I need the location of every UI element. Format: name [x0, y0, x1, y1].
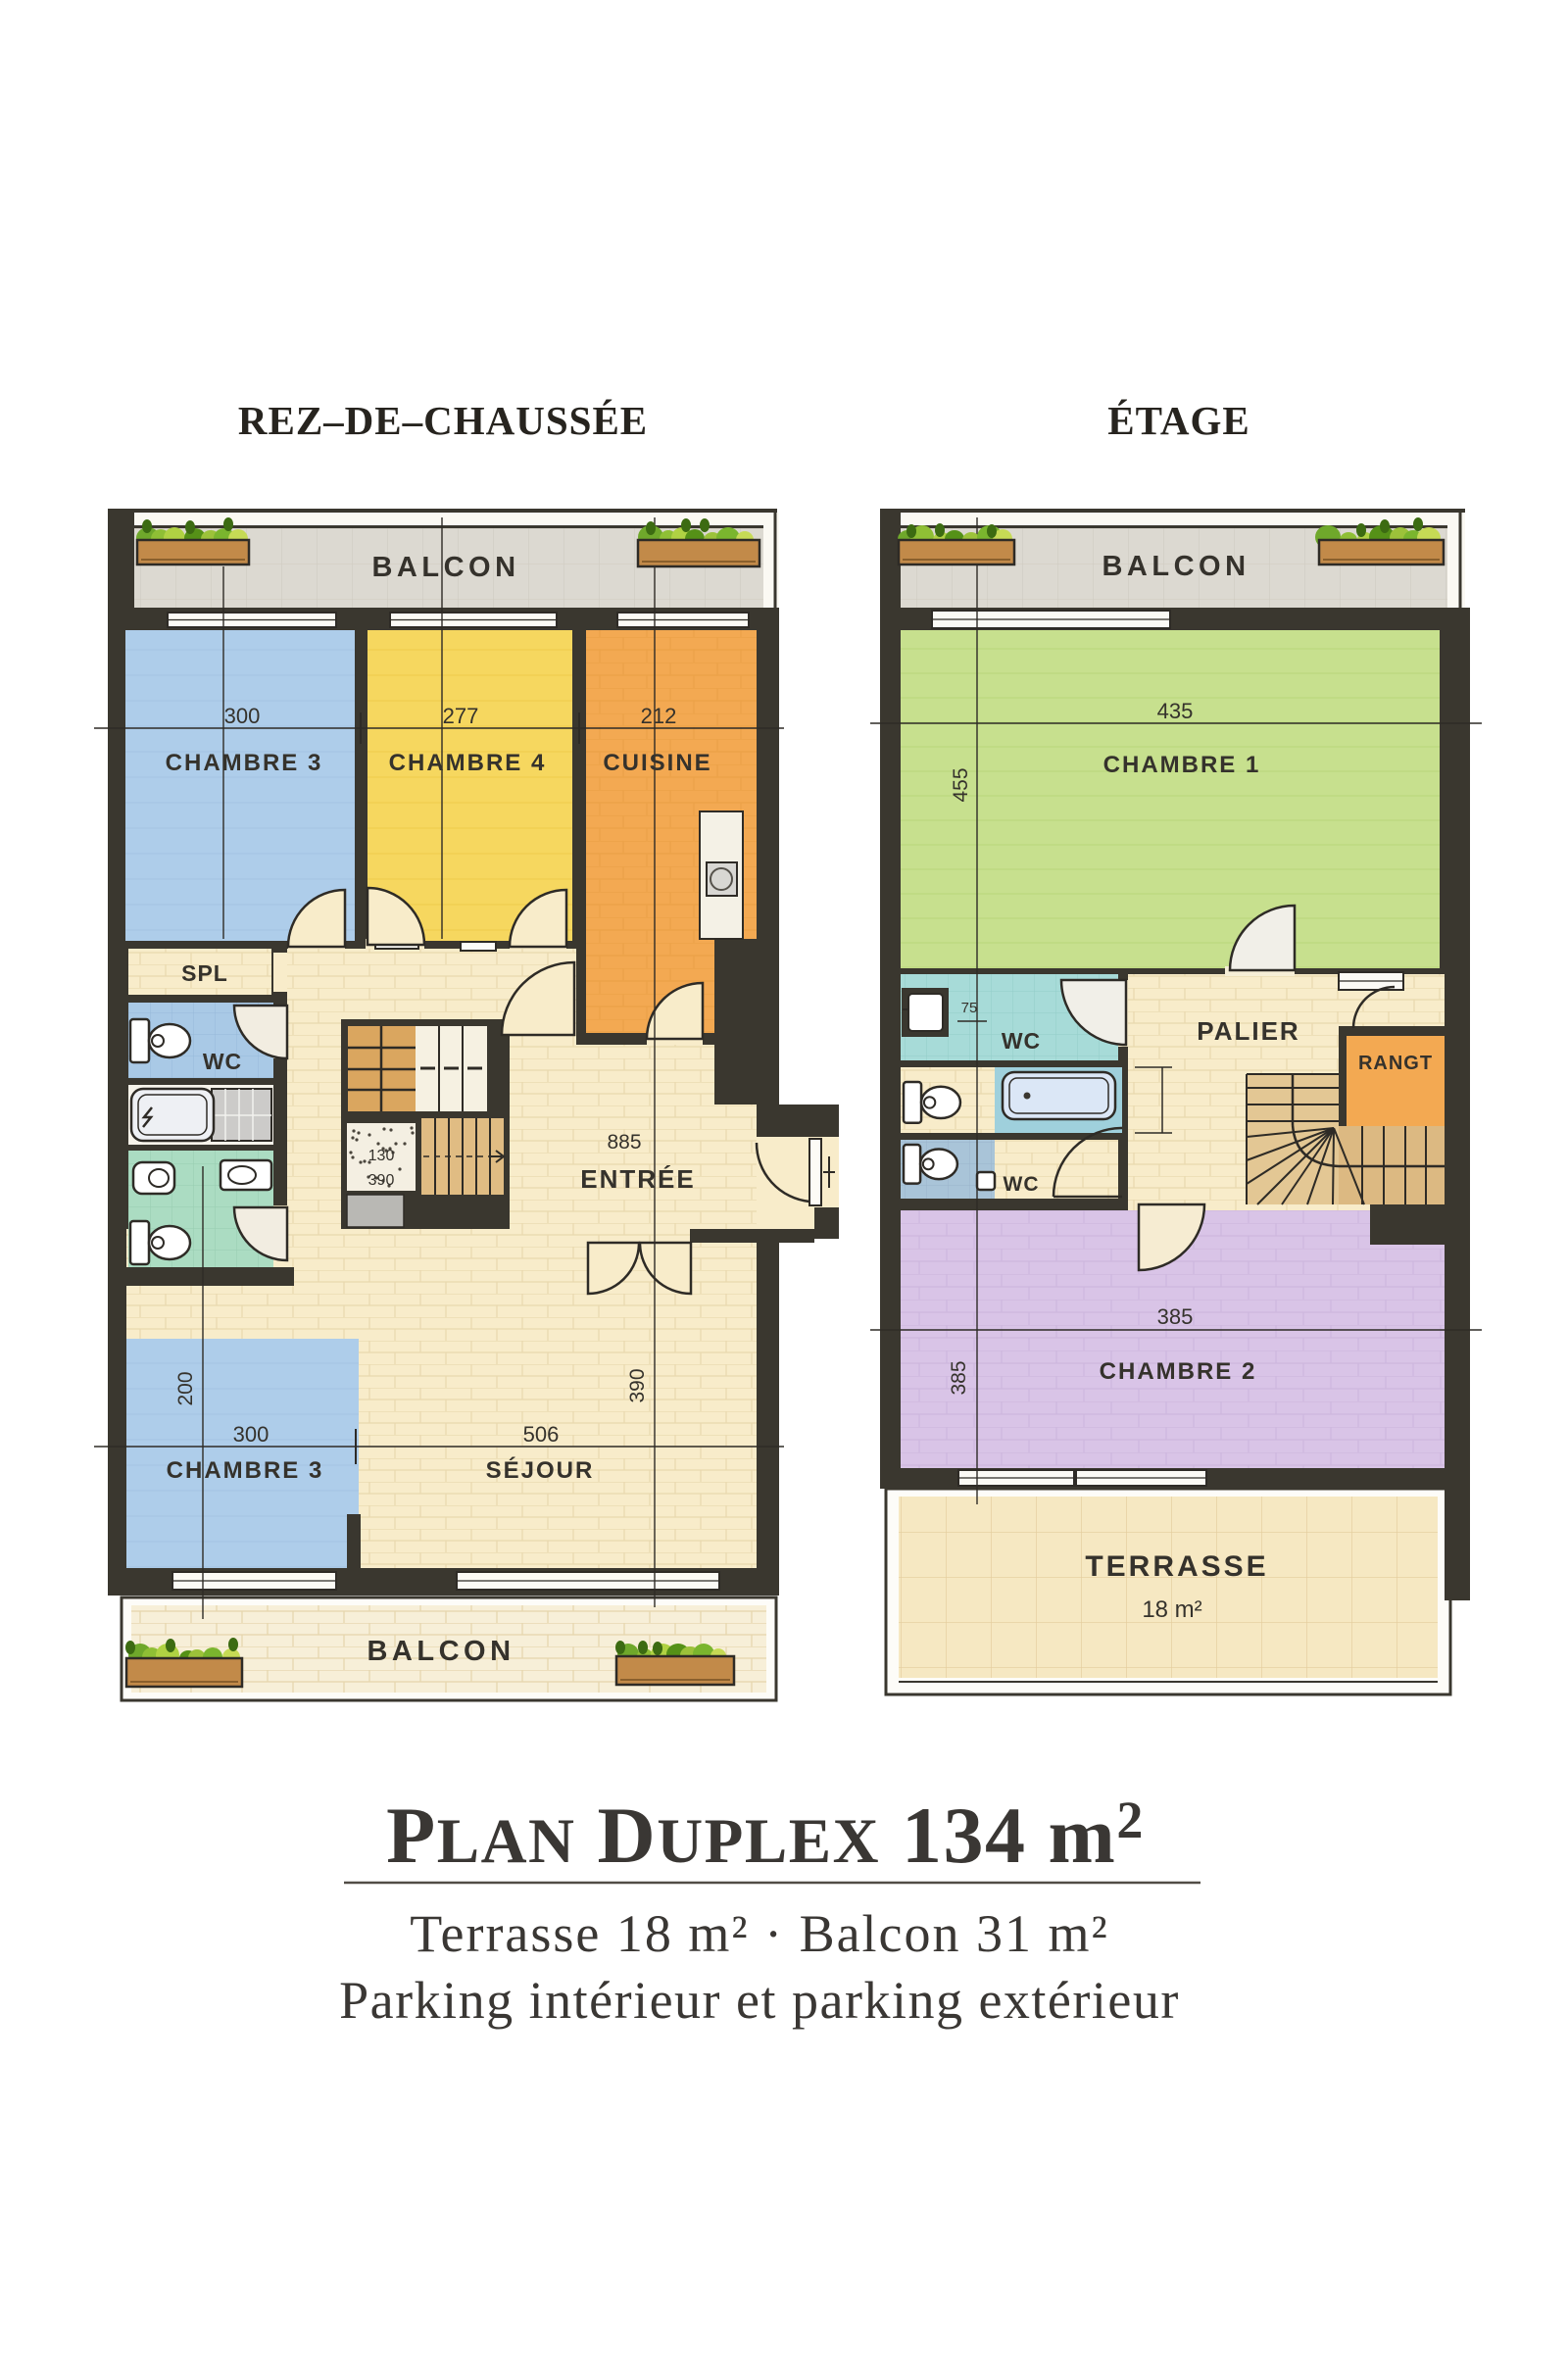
- svg-text:130: 130: [368, 1148, 395, 1164]
- svg-text:BALCON: BALCON: [1102, 551, 1249, 582]
- svg-text:506: 506: [523, 1422, 560, 1447]
- svg-text:CUISINE: CUISINE: [603, 750, 711, 776]
- svg-text:CHAMBRE 4: CHAMBRE 4: [389, 750, 547, 776]
- svg-text:390: 390: [626, 1368, 649, 1402]
- svg-text:PALIER: PALIER: [1197, 1016, 1299, 1046]
- svg-text:75: 75: [961, 1000, 978, 1016]
- svg-text:BALCON: BALCON: [367, 1636, 514, 1667]
- svg-text:ÉTAGE: ÉTAGE: [1107, 398, 1250, 443]
- svg-text:BALCON: BALCON: [371, 552, 519, 583]
- svg-text:CHAMBRE 1: CHAMBRE 1: [1103, 752, 1261, 778]
- svg-text:WC: WC: [203, 1049, 242, 1074]
- svg-text:TERRASSE: TERRASSE: [1085, 1550, 1268, 1583]
- svg-text:435: 435: [1157, 699, 1194, 723]
- svg-text:CHAMBRE 3: CHAMBRE 3: [167, 1457, 324, 1484]
- svg-text:REZ–DE–CHAUSSÉE: REZ–DE–CHAUSSÉE: [238, 398, 648, 443]
- svg-text:455: 455: [950, 767, 972, 802]
- svg-text:WC: WC: [1004, 1173, 1040, 1196]
- svg-text:300: 300: [233, 1422, 269, 1447]
- svg-text:200: 200: [174, 1371, 197, 1405]
- svg-text:390: 390: [368, 1172, 395, 1189]
- svg-text:Parking intérieur et parking e: Parking intérieur et parking extérieur: [339, 1971, 1180, 2030]
- svg-text:SPL: SPL: [181, 960, 228, 986]
- svg-text:ENTRÉE: ENTRÉE: [580, 1164, 695, 1194]
- svg-text:SÉJOUR: SÉJOUR: [486, 1456, 595, 1484]
- svg-text:18 m²: 18 m²: [1142, 1596, 1201, 1623]
- svg-text:277: 277: [443, 704, 479, 728]
- svg-text:212: 212: [641, 704, 677, 728]
- svg-text:885: 885: [607, 1131, 641, 1154]
- svg-text:CHAMBRE 2: CHAMBRE 2: [1100, 1358, 1257, 1385]
- svg-text:WC: WC: [1002, 1028, 1041, 1054]
- svg-text:385: 385: [948, 1360, 970, 1395]
- svg-text:Terrasse 18 m² · Balcon 31 m²: Terrasse 18 m² · Balcon 31 m²: [410, 1904, 1108, 1963]
- svg-text:300: 300: [224, 704, 261, 728]
- svg-text:RANGT: RANGT: [1358, 1053, 1433, 1074]
- svg-text:CHAMBRE 3: CHAMBRE 3: [166, 750, 323, 776]
- svg-text:385: 385: [1157, 1304, 1194, 1329]
